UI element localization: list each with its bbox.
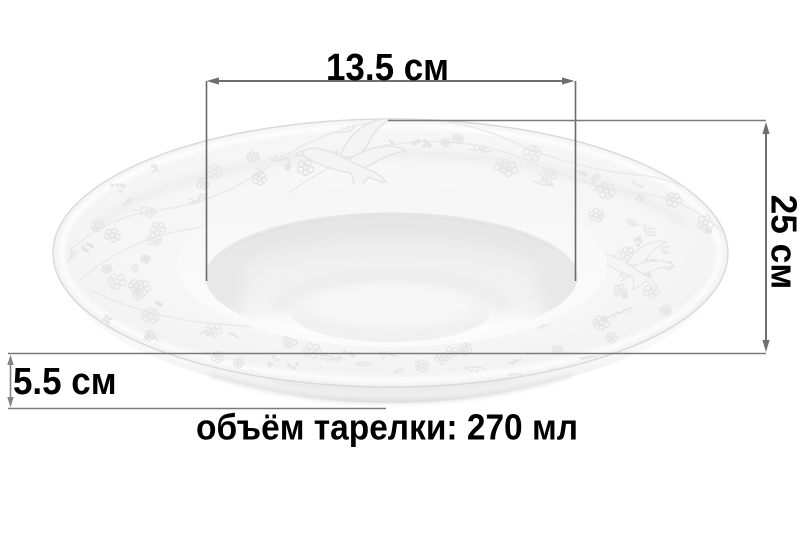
svg-text:5.5 см: 5.5 см bbox=[13, 360, 117, 403]
svg-text:25 см: 25 см bbox=[763, 195, 800, 290]
svg-text:13.5 см: 13.5 см bbox=[326, 46, 449, 89]
svg-text:объём тарелки: 270 мл: объём тарелки: 270 мл bbox=[196, 408, 578, 447]
